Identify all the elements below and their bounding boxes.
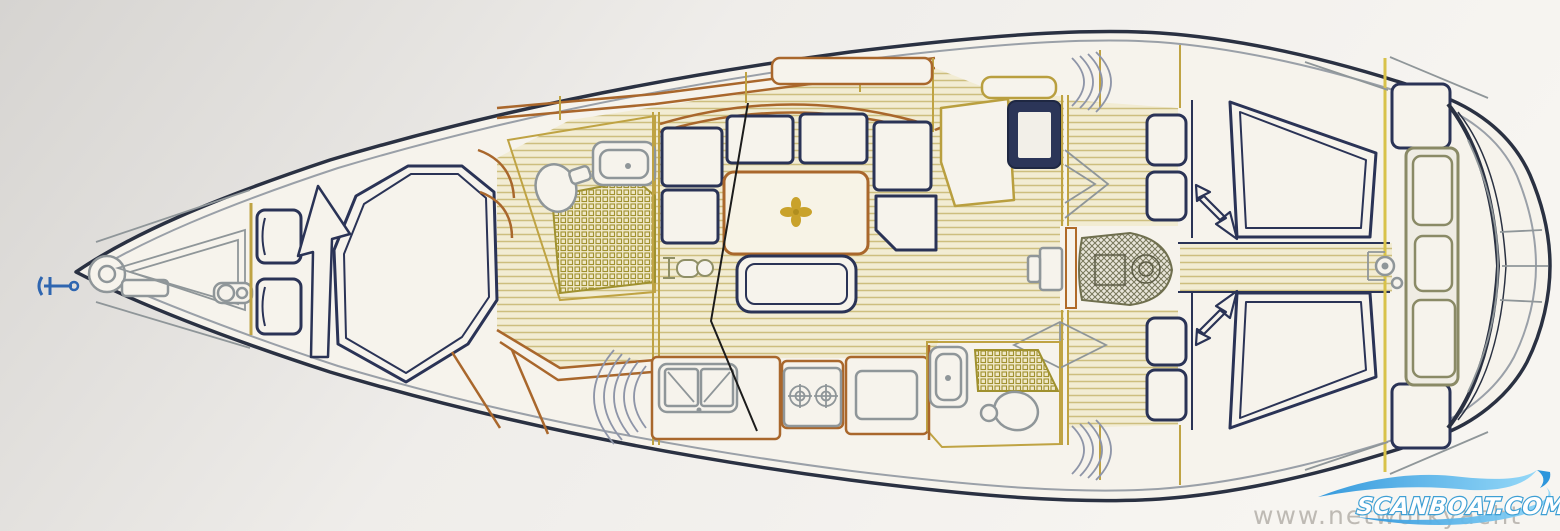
- bow-fitting-pump: [214, 283, 252, 303]
- watermark-brand-text: SCANBOAT.COM: [1355, 494, 1560, 520]
- saloon-bench: [737, 256, 856, 312]
- plan-canvas: www.networkyacht SCANBOAT.COM: [0, 0, 1560, 531]
- galley-fridge: [856, 371, 917, 419]
- transom-lockers: [1406, 148, 1458, 385]
- galley-stove: [784, 368, 841, 426]
- nav-chart-table: [941, 99, 1014, 206]
- nav-seat: [982, 77, 1056, 98]
- aft-head-sink: [930, 347, 967, 407]
- cockpit-bench-starboard: [1392, 84, 1450, 148]
- nav-instrument-panel: [1008, 101, 1061, 168]
- forward-head-sink: [593, 142, 655, 185]
- yacht-layout-plan: www.networkyacht SCANBOAT.COM: [0, 0, 1560, 531]
- cockpit-bench-port: [1392, 384, 1450, 448]
- galley-double-sink: [659, 364, 737, 413]
- saloon-table: [724, 172, 868, 254]
- galley: [652, 357, 928, 439]
